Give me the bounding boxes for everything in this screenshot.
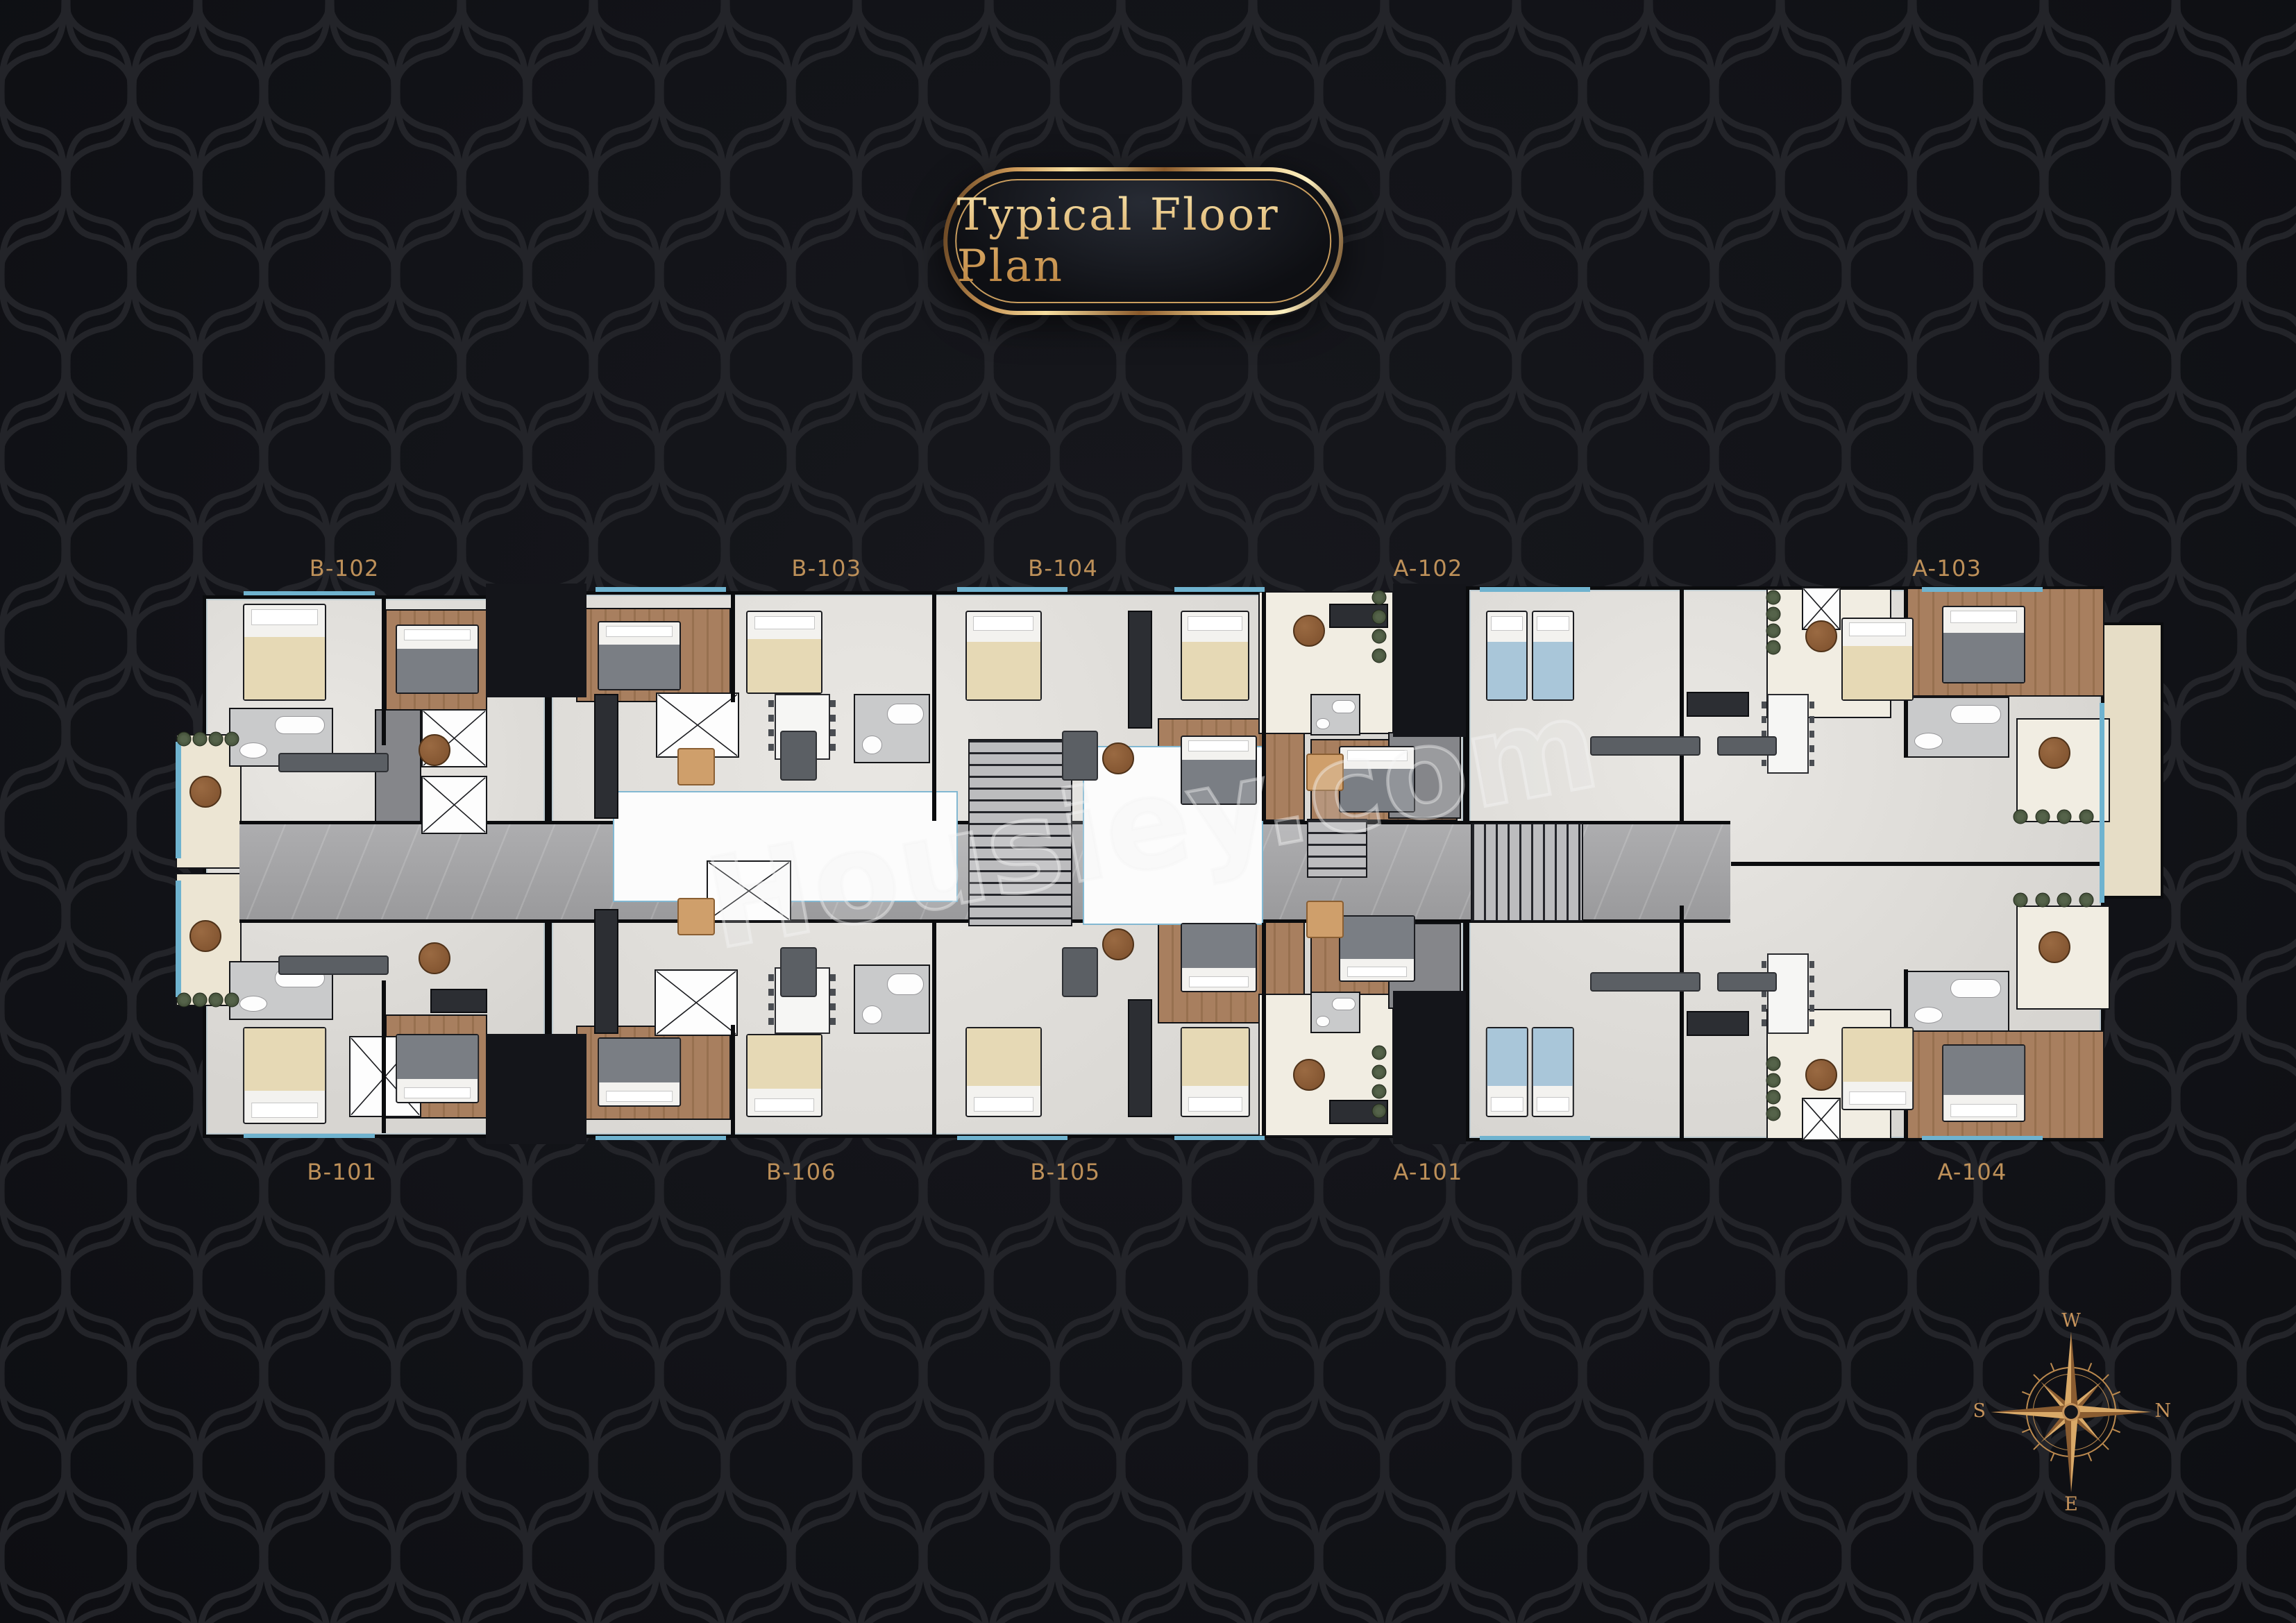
- compass-letter-n: N: [2154, 1400, 2171, 1422]
- unit-label-B-104: B-104: [1028, 555, 1098, 581]
- compass-letter-w: W: [2061, 1310, 2081, 1332]
- bathroom-a103: [1904, 697, 2009, 758]
- round-table-a101-balcony: [1293, 1059, 1325, 1091]
- plant-icon: [1372, 629, 1387, 643]
- elevator-6: [1802, 1098, 1841, 1141]
- wall-a103-a104-divider: [1731, 862, 2104, 866]
- plant-icon: [2057, 892, 2072, 907]
- kitchen-a103: [1687, 692, 1749, 717]
- bed-b103-master: [598, 621, 681, 690]
- round-table-b105: [1102, 928, 1134, 960]
- plant-icon: [1372, 1103, 1387, 1118]
- unit-label-B-106: B-106: [766, 1159, 836, 1185]
- plant-icon: [176, 731, 191, 746]
- round-table-b101: [419, 942, 450, 974]
- window-top-3: [957, 587, 1067, 591]
- window-top-5: [1480, 587, 1590, 591]
- square-table-a101: [1306, 901, 1344, 938]
- gap-bottom-left: [486, 1034, 586, 1144]
- square-table-corridor-top: [677, 748, 715, 785]
- sofa-a104: [1590, 972, 1700, 992]
- shaft-b106: [655, 969, 738, 1036]
- kitchen-b106: [594, 909, 618, 1034]
- plant-icon: [1766, 1106, 1780, 1121]
- bed-a101: [1181, 1027, 1250, 1117]
- bed-b104: [965, 611, 1042, 701]
- bed-a101-second: [1339, 915, 1415, 982]
- plant-icon: [1372, 1045, 1387, 1060]
- wall-b103-inner: [731, 591, 735, 702]
- window-left-2: [176, 881, 181, 997]
- terrace-a103-inner: [2016, 718, 2110, 822]
- plant-icon: [1372, 648, 1387, 663]
- unit-label-A-102: A-102: [1393, 555, 1462, 581]
- round-table-a103-balcony: [1805, 620, 1837, 652]
- bathroom-a104: [1904, 971, 2009, 1032]
- plant-icon: [2057, 809, 2072, 824]
- window-top-1: [244, 591, 374, 595]
- window-terrace-glass: [2100, 703, 2104, 903]
- wall-b102-inner: [382, 595, 386, 745]
- compass-rose: WNES: [1964, 1305, 2179, 1520]
- sofa-b102: [278, 753, 389, 772]
- kitchen-b104: [1128, 611, 1152, 729]
- bed-a104-twin1: [1486, 1027, 1528, 1117]
- bed-a104-master: [1942, 1044, 2025, 1122]
- sofa-b105: [1062, 947, 1098, 997]
- round-table-a102-balcony: [1293, 615, 1325, 647]
- window-bottom-4: [1174, 1136, 1265, 1140]
- bed-b102: [243, 604, 326, 701]
- page-title: Typical Floor Plan: [957, 189, 1331, 292]
- round-table-b102: [419, 734, 450, 766]
- window-bottom-2: [596, 1136, 726, 1140]
- round-table-terrace-top: [2038, 737, 2070, 769]
- plant-icon: [208, 992, 223, 1007]
- unit-label-B-101: B-101: [307, 1159, 377, 1185]
- plant-icon: [1372, 1064, 1387, 1079]
- staircase-right: [1471, 823, 1583, 921]
- bed-a103: [1841, 618, 1914, 701]
- plant-icon: [225, 731, 239, 746]
- title-badge: Typical Floor Plan: [944, 167, 1344, 315]
- plant-icon: [1766, 606, 1780, 621]
- bed-b103: [746, 611, 822, 694]
- bed-b101-master: [396, 1034, 479, 1103]
- sofa-b103: [780, 731, 816, 781]
- gap-top-left: [486, 584, 586, 697]
- unit-label-A-103: A-103: [1912, 555, 1982, 581]
- plant-icon: [1372, 1084, 1387, 1098]
- bed-a103-master: [1942, 606, 2025, 683]
- plant-icon: [1766, 1073, 1780, 1087]
- plant-icon: [225, 992, 239, 1007]
- round-table-balcony-bottom: [189, 920, 221, 952]
- sofa-a103: [1590, 736, 1700, 756]
- plant-icon: [192, 731, 207, 746]
- plant-icon: [2035, 892, 2050, 907]
- plant-icon: [1372, 609, 1387, 624]
- wall-b103-b104-top: [932, 591, 936, 821]
- window-bottom-3: [957, 1136, 1067, 1140]
- unit-label-A-101: A-101: [1393, 1159, 1462, 1185]
- wall-b105-a101-bottom: [1262, 923, 1266, 1137]
- unit-label-B-102: B-102: [310, 555, 380, 581]
- unit-label-B-103: B-103: [791, 555, 861, 581]
- window-top-4: [1174, 587, 1265, 591]
- bed-a104-twin2: [1532, 1027, 1574, 1117]
- plant-icon: [1766, 623, 1780, 638]
- armchairs-a104: [1717, 972, 1778, 992]
- unit-label-A-104: A-104: [1937, 1159, 2007, 1185]
- compass-letter-s: S: [1973, 1400, 1985, 1422]
- plant-icon: [192, 992, 207, 1007]
- right-terrace: [2104, 622, 2163, 899]
- window-top-2: [596, 587, 726, 591]
- plant-icon: [176, 992, 191, 1007]
- bed-b102-master: [396, 624, 479, 694]
- plant-icon: [1766, 1056, 1780, 1071]
- bathroom-b103: [854, 694, 930, 763]
- armchairs-a103: [1717, 736, 1778, 756]
- compass-svg: WNES: [1964, 1305, 2179, 1520]
- gap-bottom-right: [1393, 991, 1466, 1144]
- bed-a102: [1181, 611, 1250, 701]
- kitchen-a104: [1687, 1011, 1749, 1036]
- plant-icon: [2013, 892, 2027, 907]
- plant-icon: [2079, 892, 2094, 907]
- bed-b105: [965, 1027, 1042, 1117]
- kitchen-b105: [1128, 999, 1152, 1117]
- bed-a104: [1841, 1027, 1914, 1110]
- plant-icon: [1766, 640, 1780, 654]
- round-table-terrace-bottom: [2038, 931, 2070, 963]
- plant-icon: [1766, 590, 1780, 604]
- elevator-2: [421, 776, 487, 834]
- kitchen-b101: [430, 989, 487, 1013]
- plant-icon: [208, 731, 223, 746]
- plant-icon: [1372, 590, 1387, 604]
- bed-b106: [746, 1034, 822, 1117]
- wall-b106-b105-bottom: [932, 923, 936, 1137]
- window-left-1: [176, 742, 181, 858]
- bathroom-a101: [1310, 992, 1360, 1033]
- plant-icon: [2079, 809, 2094, 824]
- wall-a-wing-left-low: [1680, 906, 1684, 1141]
- window-bottom-6: [1922, 1136, 2043, 1140]
- window-bottom-5: [1480, 1136, 1590, 1140]
- plant-icon: [1766, 1089, 1780, 1104]
- plant-icon: [2013, 809, 2027, 824]
- bathroom-b106: [854, 965, 930, 1034]
- title-badge-inner: Typical Floor Plan: [956, 179, 1332, 303]
- bed-b106-master: [598, 1037, 681, 1107]
- title-badge-ring: Typical Floor Plan: [948, 171, 1340, 311]
- wall-b101-inner: [382, 980, 386, 1133]
- dining-table-a104: [1767, 953, 1809, 1033]
- round-table-balcony-top: [189, 776, 221, 808]
- wall-b106-inner: [731, 1025, 735, 1136]
- unit-label-B-105: B-105: [1030, 1159, 1100, 1185]
- compass-letter-e: E: [2064, 1493, 2078, 1515]
- dining-table-a103: [1767, 694, 1809, 774]
- bed-b101: [243, 1027, 326, 1124]
- bed-a101-master: [1181, 923, 1257, 992]
- wall-a-wing-left: [1680, 586, 1684, 822]
- window-bottom-1: [244, 1134, 374, 1138]
- stage: Typical Floor Plan B-102B-103B-104A-102A…: [0, 0, 2296, 1623]
- plant-icon: [2035, 809, 2050, 824]
- window-top-6: [1922, 587, 2043, 591]
- sofa-b101: [278, 955, 389, 975]
- kitchen-b103: [594, 694, 618, 819]
- round-table-a104-balcony: [1805, 1059, 1837, 1091]
